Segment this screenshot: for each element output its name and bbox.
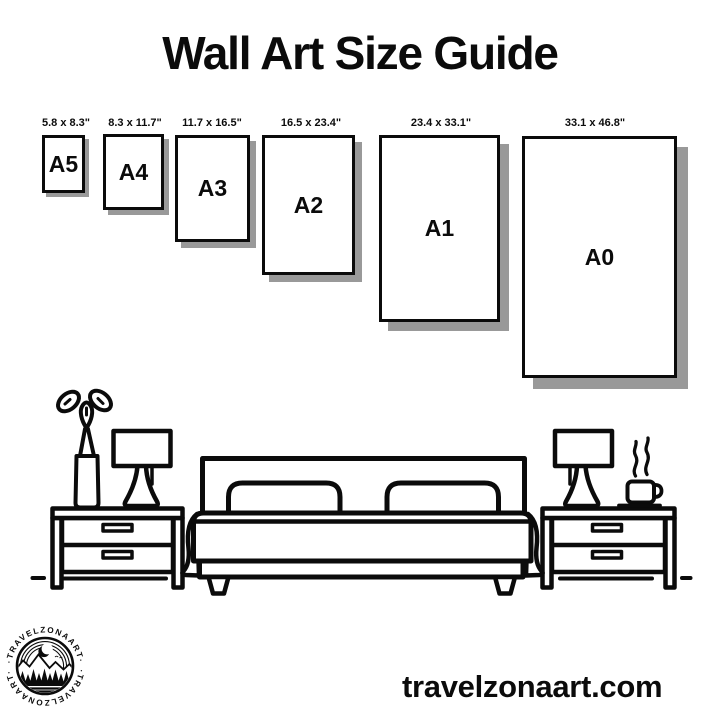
table-lamp-icon (114, 431, 171, 506)
nightstand-icon (543, 509, 675, 588)
steam-icon (646, 438, 649, 475)
frame-dimensions-label: 23.4 x 33.1" (391, 117, 491, 129)
frame-size-label: A4 (119, 159, 148, 186)
frame-dimensions-label: 16.5 x 23.4" (261, 117, 361, 129)
double-bed-icon (182, 459, 542, 594)
frame-a3: A3 (175, 135, 250, 242)
size-guide-page: Wall Art Size Guide 5.8 x 8.3" 8.3 x 11.… (0, 0, 720, 720)
page-title: Wall Art Size Guide (0, 29, 720, 77)
frame-dimensions-label: 11.7 x 16.5" (162, 117, 262, 129)
frame-size-label: A5 (49, 151, 78, 178)
frame-dimensions-label: 33.1 x 46.8" (545, 117, 645, 129)
table-lamp-icon (555, 431, 612, 506)
website-url: travelzonaart.com (402, 671, 662, 702)
brand-logo: ·TRAVELZONAART· ·TRAVELZONAART· (0, 621, 90, 711)
pillow-icon (387, 483, 499, 514)
nightstand-icon (53, 509, 183, 588)
frame-a4: A4 (103, 134, 164, 210)
coffee-cup-icon (619, 438, 662, 506)
pillow-icon (229, 483, 341, 514)
frame-size-label: A0 (585, 244, 614, 271)
frame-size-label: A3 (198, 175, 227, 202)
frame-a2: A2 (262, 135, 355, 275)
potted-plant-icon (54, 387, 114, 508)
bedroom-illustration (0, 380, 720, 610)
frame-size-label: A1 (425, 215, 454, 242)
steam-icon (634, 442, 637, 477)
frame-a0: A0 (522, 136, 677, 378)
frame-a1: A1 (379, 135, 500, 322)
frame-size-label: A2 (294, 192, 323, 219)
frame-a5: A5 (42, 135, 85, 193)
